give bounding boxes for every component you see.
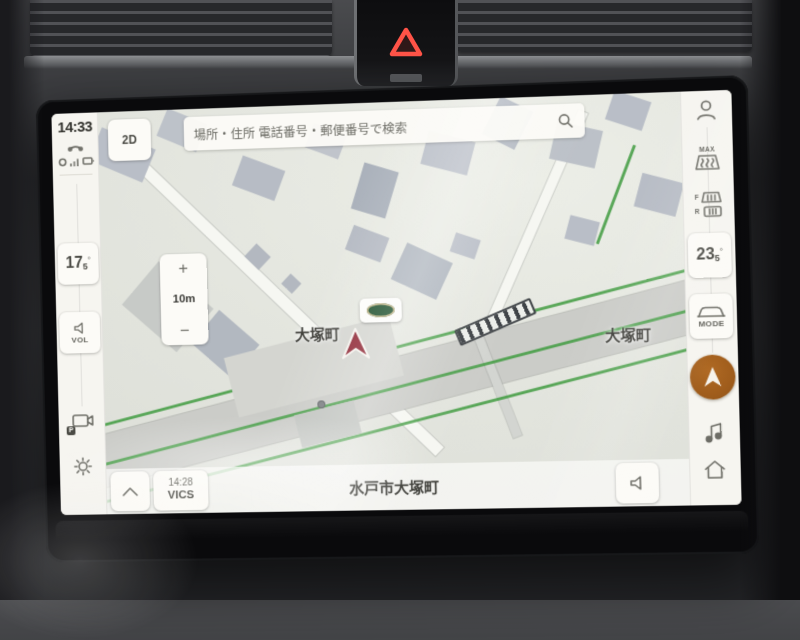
map-canvas[interactable]: 大塚町 大塚町 2D 場所・住所 電話番号・郵便番号で検索 +: [98, 92, 690, 515]
battery-icon: [82, 157, 94, 165]
signal-icon: [69, 157, 79, 166]
max-defrost-button[interactable]: MAX: [681, 141, 733, 177]
clock: 14:33: [52, 118, 99, 136]
map-building: [281, 273, 301, 293]
music-note-icon: [702, 421, 725, 446]
zoom-in-button[interactable]: +: [178, 260, 188, 277]
map-building: [351, 162, 399, 218]
profile-button[interactable]: [680, 94, 732, 126]
air-vent-left: [30, 0, 332, 56]
phone-status-icons: [52, 155, 99, 168]
map-zoom-control: + 10m −: [160, 253, 209, 345]
rail-divider: [60, 174, 93, 176]
compass-arrow-icon: [701, 365, 724, 390]
parking-badge: P: [67, 426, 76, 435]
hazard-triangle-icon: [386, 24, 426, 62]
map-building: [345, 225, 390, 263]
zoom-out-button[interactable]: −: [180, 322, 190, 339]
right-rail: MAX F R: [680, 90, 742, 506]
map-area-label: 大塚町: [295, 323, 340, 345]
call-status-icon: [58, 157, 67, 166]
map-scale-label: 10m: [173, 293, 196, 305]
climate-mode-button[interactable]: MODE: [689, 293, 733, 339]
search-icon: [556, 112, 575, 131]
driver-temp-button[interactable]: 17 5 °: [57, 242, 99, 284]
passenger-temp-unit: °: [720, 248, 724, 256]
settings-gear-icon: [71, 454, 95, 478]
land-rover-badge-icon: [367, 303, 395, 318]
hazard-button[interactable]: [354, 0, 458, 86]
map-building: [564, 215, 600, 246]
current-position-arrow-icon: [340, 327, 371, 367]
map-area-label-edge: 大塚町: [605, 324, 651, 346]
defrost-max-icon: [695, 153, 720, 172]
parking-camera-button[interactable]: P: [58, 406, 105, 436]
map-view-2d-button[interactable]: 2D: [108, 118, 152, 161]
mode-label: MODE: [698, 319, 724, 329]
rear-defrost-label: R: [695, 208, 700, 215]
left-rail: 14:33 17 5 ° VOL: [51, 112, 107, 515]
map-building: [450, 232, 481, 259]
person-icon: [692, 96, 719, 123]
search-input[interactable]: 場所・住所 電話番号・郵便番号で検索: [184, 103, 585, 151]
phone-icon: [52, 138, 99, 153]
map-building: [232, 155, 285, 201]
rail-track-line: [76, 184, 82, 406]
home-icon: [702, 458, 727, 481]
map-building: [605, 92, 652, 131]
volume-button[interactable]: VOL: [59, 311, 101, 353]
passenger-temp-value: 23: [696, 247, 715, 264]
car-mode-icon: [695, 304, 726, 320]
cabin-light-blur: [0, 480, 200, 640]
home-button[interactable]: [689, 454, 741, 485]
cabin-shadow-right: [740, 0, 800, 600]
mute-icon: [627, 474, 648, 493]
screen-ui: 大塚町 大塚町 2D 場所・住所 電話番号・郵便番号で検索 +: [51, 90, 741, 515]
map-building: [391, 243, 453, 300]
speaker-icon: [71, 321, 89, 336]
defrost-front-icon: [701, 191, 722, 204]
media-button[interactable]: [688, 417, 740, 448]
passenger-temp-button[interactable]: 23 5 °: [688, 232, 732, 278]
search-placeholder: 場所・住所 電話番号・郵便番号で検索: [193, 112, 548, 143]
compass-button[interactable]: [690, 354, 736, 400]
traffic-line: [596, 145, 636, 245]
front-defrost-label: F: [695, 194, 700, 201]
vehicle-badge-callout: [360, 298, 402, 323]
view-2d-label: 2D: [122, 133, 137, 147]
volume-label: VOL: [72, 335, 89, 344]
settings-button[interactable]: [60, 451, 107, 481]
map-poi-dot: [318, 401, 324, 407]
mute-guidance-button[interactable]: [615, 462, 659, 503]
front-rear-defrost-button[interactable]: F R: [682, 183, 734, 225]
driver-temp-value: 17: [65, 256, 83, 272]
driver-temp-unit: °: [87, 256, 90, 264]
defrost-rear-icon: [702, 205, 723, 218]
map-building: [634, 173, 684, 217]
air-vent-right: [456, 0, 752, 52]
